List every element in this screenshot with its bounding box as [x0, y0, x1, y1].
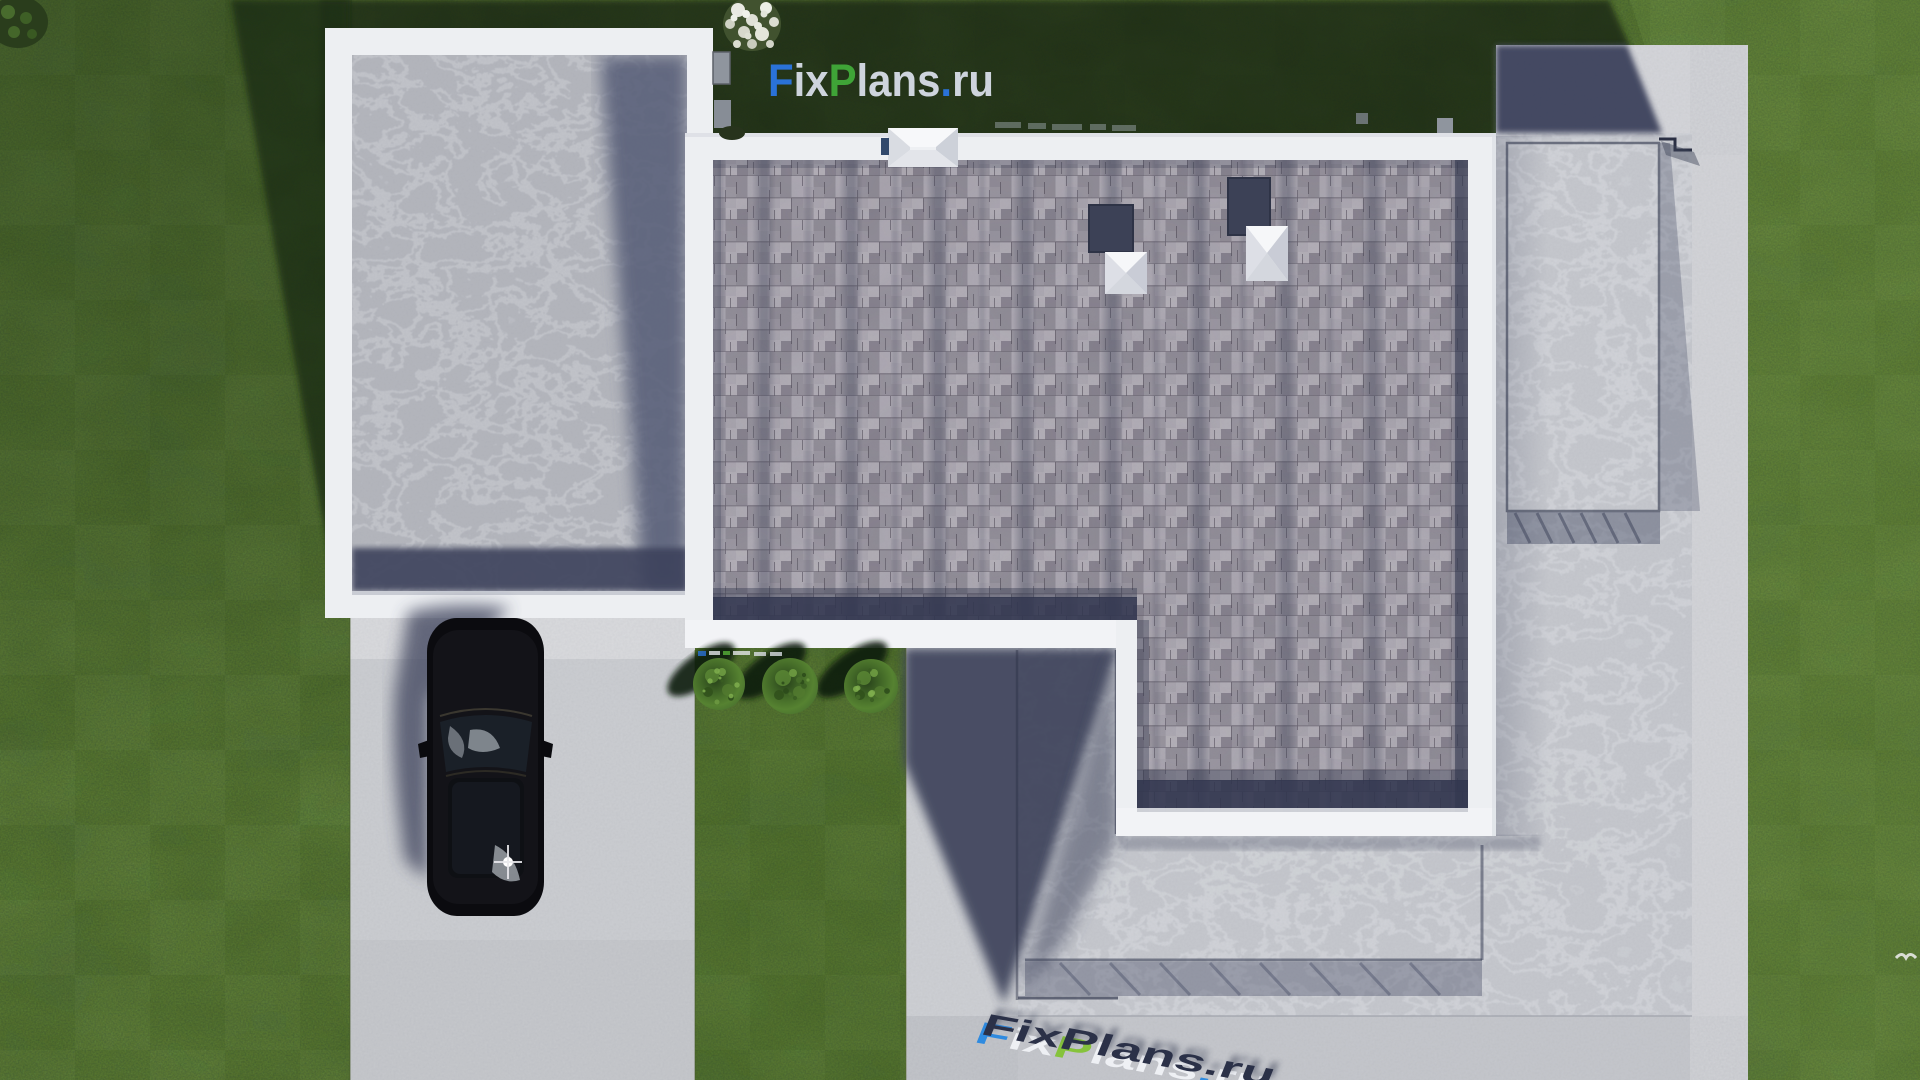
svg-text:FixPlans.ru: FixPlans.ru [768, 55, 994, 106]
